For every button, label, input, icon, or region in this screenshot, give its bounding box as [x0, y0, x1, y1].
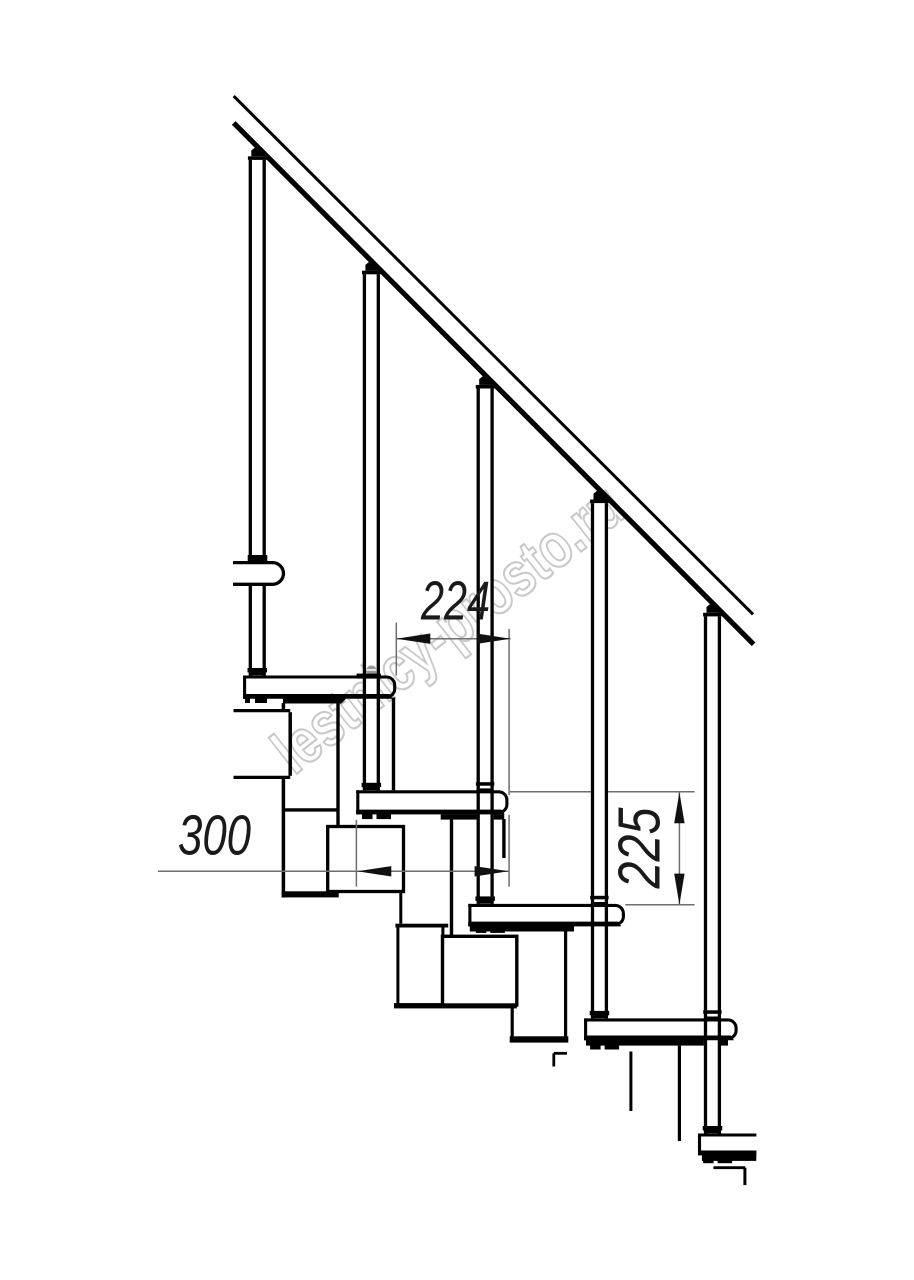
svg-text:300: 300	[178, 804, 251, 868]
svg-text:224: 224	[420, 570, 490, 632]
svg-text:225: 225	[607, 807, 673, 889]
